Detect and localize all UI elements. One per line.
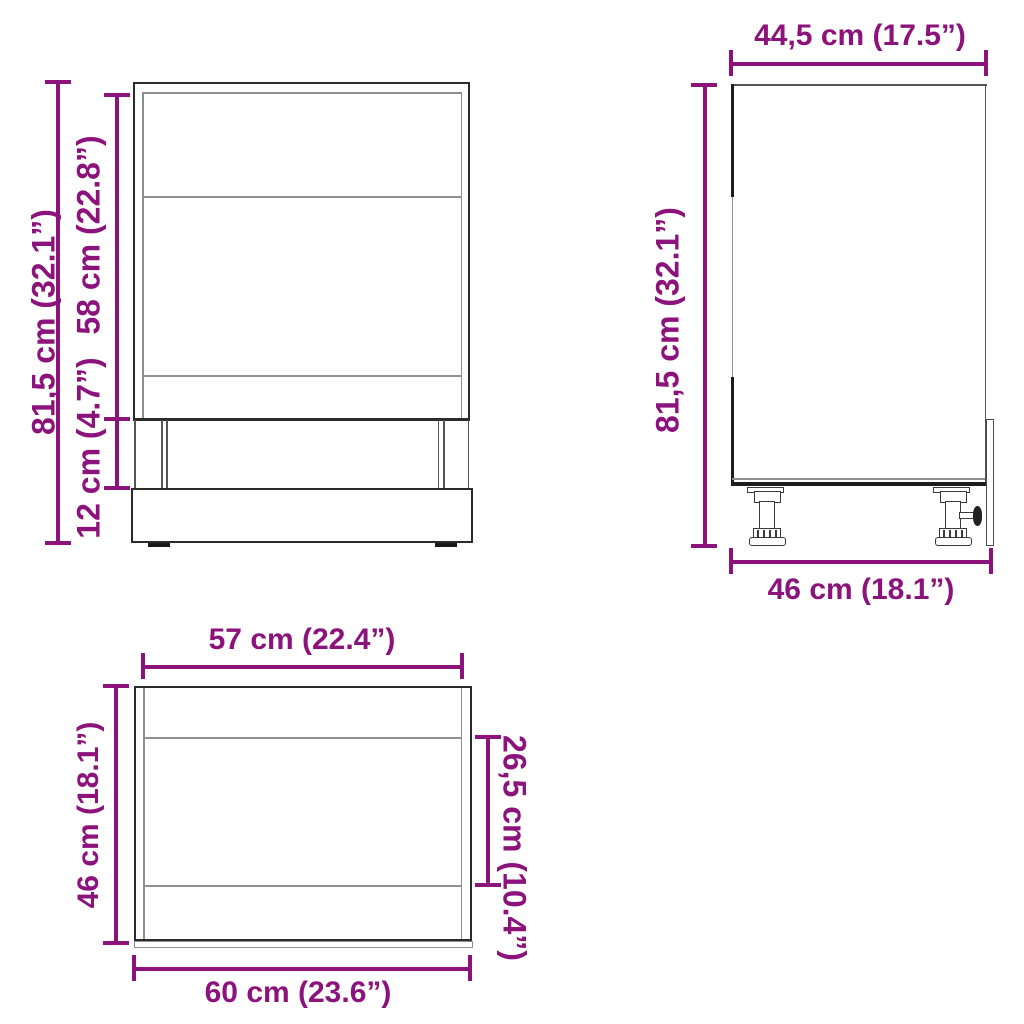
top-inner-width-dim-line [143, 665, 462, 669]
side-total-height-label: 81,5 cm (32.1”) [650, 207, 687, 433]
top-inner-width-tick-left [141, 653, 145, 679]
front-left-side-panel [133, 82, 135, 419]
front-left-leg-line-2 [166, 420, 168, 488]
front-total-height-label: 81,5 cm (32.1”) [26, 209, 63, 435]
top-left-wall-line [143, 688, 145, 939]
front-plinth-height-label: 12 cm (4.7”) [71, 357, 108, 538]
front-right-side-panel [468, 82, 470, 419]
side-front-edge-lower [731, 377, 734, 485]
front-right-leg-line-1 [438, 420, 440, 488]
top-front-panel-strip [134, 941, 473, 948]
front-top-rail-line [142, 92, 462, 94]
front-body-height-dim-line [115, 93, 119, 488]
top-depth-label: 46 cm (18.1”) [72, 722, 106, 909]
side-rear-leg-knurl [943, 530, 963, 537]
side-total-height-tick-top [691, 83, 717, 87]
front-body-height-label: 58 cm (22.8”) [71, 135, 108, 334]
top-outer-width-tick-left [132, 955, 136, 981]
front-total-height-tick-bottom [45, 541, 71, 545]
side-bottom-shelf-line [732, 478, 985, 480]
side-bottom-edge [731, 482, 987, 486]
side-top-depth-dim-line [731, 62, 987, 66]
side-front-edge-upper [731, 84, 734, 197]
side-rear-leg-screw-knob [973, 506, 982, 526]
side-total-height-tick-bottom [691, 544, 717, 548]
top-inner-width-tick-right [460, 653, 464, 679]
top-opening-back-line [145, 885, 461, 887]
dimension-diagram: 81,5 cm (32.1”) 58 cm (22.8”) 12 cm (4.7… [0, 0, 1024, 1024]
top-inner-width-label: 57 cm (22.4”) [209, 623, 396, 657]
front-upper-panel-line [143, 196, 461, 198]
front-lower-panel-line [143, 375, 461, 377]
top-depth-dim-line [114, 686, 118, 943]
top-depth-tick-bottom [103, 941, 129, 945]
top-depth-tick-top [103, 684, 129, 688]
front-plinth-panel [131, 488, 473, 543]
top-opening-depth-label: 26,5 cm (10.4”) [496, 735, 533, 961]
front-recess-right-edge [468, 420, 470, 488]
top-opening-depth-dim-line [486, 737, 490, 887]
side-rear-leg-base [935, 537, 972, 546]
top-outer-width-dim-line [134, 967, 472, 971]
side-total-height-dim-line [703, 85, 707, 546]
side-bottom-depth-label: 46 cm (18.1”) [768, 573, 955, 607]
front-total-height-tick-top [45, 80, 71, 84]
side-bottom-depth-tick-left [729, 548, 733, 574]
front-body-height-tick-bottom [104, 486, 130, 490]
front-right-leg-line-2 [443, 420, 445, 488]
top-carcass-outline [134, 686, 472, 941]
top-opening-front-line [145, 737, 461, 739]
side-top-depth-label: 44,5 cm (17.5”) [754, 19, 966, 53]
side-bottom-depth-tick-right [989, 548, 993, 574]
top-right-wall-line [461, 688, 463, 939]
side-front-leg-base [749, 537, 786, 546]
top-outer-width-tick-right [468, 955, 472, 981]
side-front-edge-middle [732, 197, 734, 377]
front-body-height-tick-mid [104, 417, 130, 421]
front-left-inner-line [142, 92, 144, 419]
front-body-bottom-edge [133, 418, 470, 421]
side-back-panel-strip [986, 419, 994, 546]
front-body-height-tick-top [104, 93, 130, 97]
top-outer-width-label: 60 cm (23.6”) [205, 976, 392, 1010]
side-front-leg-knurl [757, 530, 777, 537]
side-top-depth-tick-left [729, 50, 733, 76]
front-right-inner-line [461, 92, 463, 419]
front-top-edge [133, 82, 470, 84]
side-top-depth-tick-right [984, 50, 988, 76]
side-top-edge [731, 84, 987, 86]
side-bottom-depth-dim-line [731, 560, 993, 564]
side-front-leg-stem [759, 501, 775, 530]
front-recess-left-edge [134, 420, 136, 488]
front-left-leg-line-1 [161, 420, 163, 488]
